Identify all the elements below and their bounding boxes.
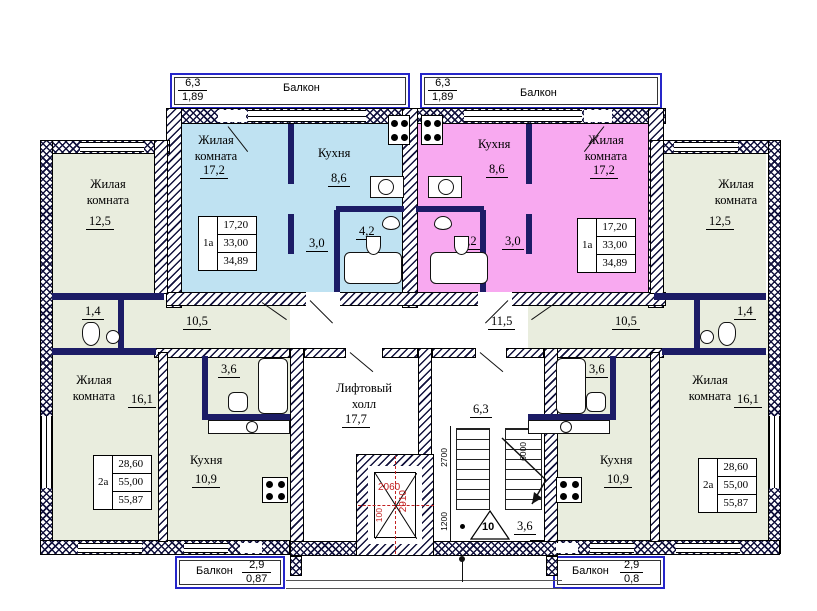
wing-left-room2-label: Жилая комната xyxy=(60,372,128,405)
stairs-flight-steps: 10 xyxy=(482,521,494,533)
wall-room1-left-bottom xyxy=(52,293,164,300)
studio-right-hall-area: 3,0 xyxy=(502,234,524,250)
balcony-bottom-left-dims: 2,9 0,87 xyxy=(242,559,271,585)
balcony-bottom-right-dims: 2,9 0,8 xyxy=(620,559,643,585)
balcony-top-left-label: Балкон xyxy=(283,82,320,94)
window-kitchen-left-bottom xyxy=(184,543,228,553)
shaft-dim-offset: 100 xyxy=(374,508,384,522)
wall-lift-hall-top-b xyxy=(382,348,418,358)
balcony-bottom-left-label: Балкон xyxy=(196,565,233,577)
wall-lift-hall-left xyxy=(290,348,304,556)
wing-right-hall-area: 10,5 xyxy=(612,314,640,330)
wall-wing-left-inner xyxy=(154,140,168,294)
balcony-top-left-dims: 6,3 1,89 xyxy=(178,77,207,103)
studio-right-kitchen-label: Кухня xyxy=(478,136,510,152)
window-kitchen-right-bottom xyxy=(590,543,634,553)
window-wing-left-side xyxy=(41,416,52,488)
washbasin-icon xyxy=(586,392,606,412)
wall-room1-right-bottom xyxy=(654,293,766,300)
balcony-top-right-dims: 6,3 1,89 xyxy=(428,77,457,103)
balcony-width: 6,3 xyxy=(178,77,207,91)
wing-left-bath-area: 3,6 xyxy=(218,362,240,378)
wall-room2-left-top xyxy=(52,348,156,355)
studio-right-living-label: Жилая комната xyxy=(568,132,644,165)
toilet-icon xyxy=(718,322,736,346)
door-kitchen-right-balcony xyxy=(556,543,578,553)
balcony-width: 6,3 xyxy=(428,77,457,91)
lift-hall-label: Лифтовый холл xyxy=(326,380,402,413)
studio-left-stamp: 1а 17,20 33,00 34,89 xyxy=(198,216,257,271)
wing-left-kitchen-area: 10,9 xyxy=(192,472,220,488)
kitchen-sink-icon xyxy=(246,421,258,433)
balcony-bottom-right-label: Балкон xyxy=(572,565,609,577)
window-wing-right-side xyxy=(769,416,780,488)
stamp-living-area: 17,20 xyxy=(218,217,256,235)
wall-room2-right-top xyxy=(662,348,766,355)
stamp-total-area: 55,00 xyxy=(718,477,756,495)
wall-bath-left-v xyxy=(202,356,208,416)
studio-right-kitchen-area: 8,6 xyxy=(486,162,508,178)
wall-blue-partition-a xyxy=(288,124,294,184)
stamp-living-area: 28,60 xyxy=(718,459,756,477)
stove-icon xyxy=(421,115,443,145)
stove-icon xyxy=(262,477,288,503)
wall-studios-bottom xyxy=(166,292,666,306)
stamp-total-area: 55,00 xyxy=(113,474,151,492)
core-entry-hall-area: 11,5 xyxy=(488,314,515,330)
studio-left-living-area: 17,2 xyxy=(200,163,228,179)
toilet-icon xyxy=(382,216,400,230)
stamp-type: 2а xyxy=(94,456,113,509)
stair-dot-marker xyxy=(460,524,465,529)
balcony-top-right-label: Балкон xyxy=(520,87,557,99)
wing-left-kitchen-label: Кухня xyxy=(190,452,222,468)
wing-left-stamp: 2а 28,60 55,00 55,87 xyxy=(93,455,152,510)
stairs-width: 6,3 xyxy=(470,402,492,418)
window-room2-left-bottom xyxy=(78,543,142,553)
stamp-total-area: 33,00 xyxy=(218,235,256,253)
wall-blue-bath-v xyxy=(334,210,340,294)
stamp-living-area: 28,60 xyxy=(113,456,151,474)
stamp-type: 2а xyxy=(699,459,718,512)
washbasin-icon xyxy=(106,330,120,344)
window-room2-right-bottom xyxy=(676,543,740,553)
window-wing-right-top xyxy=(674,142,738,152)
washbasin-icon xyxy=(454,236,469,255)
window-pink-balcony xyxy=(464,110,582,122)
wing-right-stamp: 2а 28,60 55,00 55,87 xyxy=(698,458,757,513)
bathtub-icon xyxy=(556,358,586,414)
balcony-area: 0,87 xyxy=(242,573,271,586)
shaft-dim-width: 2060 xyxy=(378,482,400,493)
toilet-icon xyxy=(82,322,100,346)
balcony-bottom-right xyxy=(553,556,665,589)
toilet-icon xyxy=(434,216,452,230)
stair-dim-line-left xyxy=(450,426,451,514)
window-wing-left-top xyxy=(80,142,144,152)
studio-left-hall-area: 3,0 xyxy=(306,236,328,252)
stove-icon xyxy=(388,115,410,145)
lift-hall-area: 17,7 xyxy=(342,412,370,428)
wall-stair-top-b xyxy=(506,348,544,358)
wing-right-kitchen-area: 10,9 xyxy=(604,472,632,488)
studio-left-kitchen-label: Кухня xyxy=(318,145,350,161)
wall-stub-left xyxy=(290,556,302,576)
wing-right-wc-area: 1,4 xyxy=(734,304,756,320)
stairs-dim-right: 6000 xyxy=(518,442,528,461)
wall-pink-bath-h xyxy=(416,206,484,212)
balcony-area: 1,89 xyxy=(178,91,207,104)
balcony-width: 2,9 xyxy=(620,559,643,573)
wing-left-room1-label: Жилая комната xyxy=(70,176,146,209)
kitchen-sink-icon xyxy=(560,421,572,433)
stamp-area-with-balcony: 34,89 xyxy=(218,253,256,270)
wall-room2-kitchen-left xyxy=(158,352,168,542)
balcony-width: 2,9 xyxy=(242,559,271,573)
wall-bath-right-v xyxy=(610,356,616,416)
door-gap-blue-entry xyxy=(306,292,340,306)
washbasin-icon xyxy=(228,392,248,412)
wall-stair-top-a xyxy=(432,348,476,358)
window-blue-balcony xyxy=(248,110,366,122)
stamp-area-with-balcony: 34,89 xyxy=(597,255,635,272)
washbasin-icon xyxy=(366,236,381,255)
wall-lift-hall-top-a xyxy=(304,348,346,358)
wing-right-room1-label: Жилая комната xyxy=(698,176,774,209)
wall-wing-right-inner xyxy=(650,140,664,294)
stamp-area-with-balcony: 55,87 xyxy=(113,492,151,509)
floor-plan: 6,3 1,89 Балкон 6,3 1,89 Балкон Балкон 2… xyxy=(0,0,817,611)
bathtub-icon xyxy=(258,358,288,414)
balcony-area: 0,8 xyxy=(620,573,643,586)
stairs-dim-left: 2700 xyxy=(439,448,449,467)
kitchen-sink-icon xyxy=(438,179,454,195)
wing-left-room1-area: 12,5 xyxy=(86,214,114,230)
door-pink-balcony xyxy=(584,110,612,122)
wall-wing-left-outer xyxy=(40,140,53,554)
studio-left-kitchen-area: 8,6 xyxy=(328,171,350,187)
stamp-type: 1а xyxy=(199,217,218,270)
bathtub-icon xyxy=(430,252,488,284)
shaft-dim-height: 2910 xyxy=(398,490,409,512)
wing-right-kitchen-label: Кухня xyxy=(600,452,632,468)
wall-pink-partition-b xyxy=(526,214,532,254)
section-mark-dot xyxy=(459,556,465,562)
washbasin-icon xyxy=(700,330,714,344)
kitchen-sink-icon xyxy=(378,179,394,195)
wall-room2-kitchen-right xyxy=(650,352,660,542)
shaft-centerline-h xyxy=(358,505,434,506)
stair-dim-line-bottom xyxy=(450,514,451,542)
wing-right-room1-area: 12,5 xyxy=(706,214,734,230)
wall-wc-left xyxy=(118,297,124,352)
stamp-type: 1а xyxy=(578,219,597,272)
stairs-dim-bottom: 1200 xyxy=(439,512,449,531)
stamp-total-area: 33,00 xyxy=(597,237,635,255)
stairs-landing-width: 3,6 xyxy=(514,519,536,535)
door-kitchen-left-balcony xyxy=(240,543,262,553)
wall-stub-right xyxy=(546,556,558,576)
wall-hall-left-bottom xyxy=(154,348,290,358)
wall-blue-bath-h xyxy=(336,206,404,212)
wing-left-hall-area: 10,5 xyxy=(183,314,211,330)
wing-left-room2-area: 16,1 xyxy=(128,392,156,408)
bathtub-icon xyxy=(344,252,402,284)
wing-left-wc-area: 1,4 xyxy=(82,304,104,320)
wing-right-room2-area: 16,1 xyxy=(734,392,762,408)
studio-right-stamp: 1а 17,20 33,00 34,89 xyxy=(577,218,636,273)
studio-right-living-area: 17,2 xyxy=(590,163,618,179)
entrance-porch xyxy=(286,580,562,589)
wall-blue-partition-b xyxy=(288,214,294,254)
studio-left-living-label: Жилая комната xyxy=(178,132,254,165)
stamp-living-area: 17,20 xyxy=(597,219,635,237)
stove-icon xyxy=(556,477,582,503)
wall-pink-partition-a xyxy=(526,124,532,184)
balcony-area: 1,89 xyxy=(428,91,457,104)
wall-wc-right xyxy=(694,297,700,352)
door-blue-balcony xyxy=(218,110,246,122)
stamp-area-with-balcony: 55,87 xyxy=(718,495,756,512)
wing-right-bath-area: 3,6 xyxy=(586,362,608,378)
